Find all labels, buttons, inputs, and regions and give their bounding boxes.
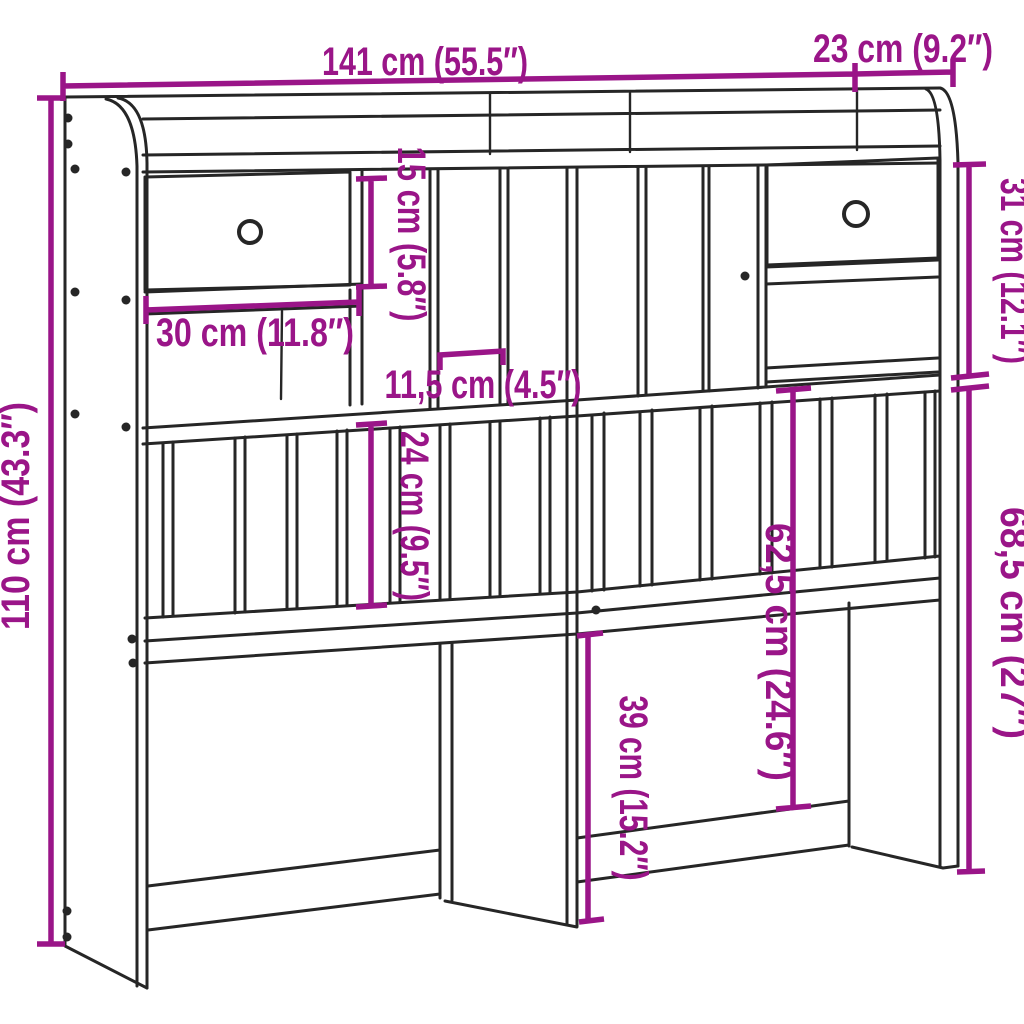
right-leg <box>849 603 958 868</box>
dim-leg-clearance-height: 39 cm (15.2″) <box>577 633 655 922</box>
dim-cubby-width-label: 11,5 cm (4.5″) <box>385 363 582 407</box>
right-drawer-knob-icon <box>844 202 868 226</box>
left-drawer-section <box>145 171 362 405</box>
pin-hole <box>71 288 80 297</box>
dim-shelf-opening-height: 15 cm (5.8″) <box>356 147 433 322</box>
pin-hole <box>129 659 138 668</box>
dim-headboard-panel-height: 62,5 cm (24.6″) <box>757 388 811 809</box>
dim-total-width-label: 141 cm (55.5″) <box>322 40 528 84</box>
legs-and-base <box>148 603 958 930</box>
pin-hole <box>64 114 73 123</box>
right-panel-outer <box>940 88 958 866</box>
outer-frame <box>65 88 958 988</box>
pin-hole <box>63 933 72 942</box>
left-panel-outer <box>65 97 147 988</box>
top-board-bottom-edge <box>143 110 940 119</box>
dim-lower-section-height-line <box>957 386 985 872</box>
left-drawer-knob-icon <box>239 221 261 243</box>
dim-total-height: 110 cm (43.3″) <box>0 98 65 944</box>
furniture-drawing <box>63 88 959 988</box>
lower-rail <box>145 556 940 663</box>
dim-drawer-opening-width-label: 30 cm (11.8″) <box>156 311 354 355</box>
center-leg <box>440 644 577 927</box>
pin-hole <box>71 410 80 419</box>
left-panel-corner-outer <box>106 99 137 986</box>
left-panel-corner-inner <box>118 98 147 988</box>
top-rail-joints <box>490 91 857 154</box>
pin-hole <box>71 165 80 174</box>
center-divider <box>567 168 577 926</box>
dim-top-depth: 23 cm (9.2″) <box>813 27 993 87</box>
dim-drawer-opening-width: 30 cm (11.8″) <box>146 288 359 355</box>
pin-hole <box>122 296 131 305</box>
slats-left-group <box>163 417 550 617</box>
dim-leg-clearance-height-label: 39 cm (15.2″) <box>611 696 655 881</box>
pin-hole <box>122 168 131 177</box>
dim-top-section-height: 31 cm (12.1″) <box>951 164 1024 390</box>
dim-lower-section-height: 68,5 cm (27″) <box>957 386 1024 872</box>
left-kick-rail <box>148 850 440 930</box>
pin-hole <box>741 272 750 281</box>
drawing-canvas: 141 cm (55.5″) 23 cm (9.2″) 110 cm (43.3… <box>0 0 1024 1024</box>
pin-hole <box>122 423 131 432</box>
dim-top-section-height-label: 31 cm (12.1″) <box>992 178 1024 364</box>
cubby-ceiling-edge <box>143 163 940 172</box>
right-drawer-front <box>767 158 938 265</box>
dim-slat-section-height-label: 24 cm (9.5″) <box>392 431 436 601</box>
pin-hole <box>64 140 73 149</box>
cubby-divider-3 <box>638 167 646 396</box>
pin-hole <box>63 907 72 916</box>
dim-lower-section-height-label: 68,5 cm (27″) <box>992 507 1024 739</box>
pin-hole <box>592 606 601 615</box>
cubby-divider-wide <box>703 166 766 391</box>
dim-shelf-opening-height-label: 15 cm (5.8″) <box>389 147 433 322</box>
top-rail-bottom-edge <box>143 146 940 155</box>
dim-total-height-label: 110 cm (43.3″) <box>0 402 38 630</box>
headboard-dimension-diagram: 141 cm (55.5″) 23 cm (9.2″) 110 cm (43.3… <box>0 0 1024 1024</box>
pin-hole <box>128 635 137 644</box>
dim-total-height-line <box>37 98 65 944</box>
headboard-slats <box>163 391 935 617</box>
dim-headboard-panel-height-label: 62,5 cm (24.6″) <box>757 523 801 781</box>
dim-slat-section-height-line <box>356 423 387 607</box>
top-board-edge <box>65 88 940 97</box>
left-drawer-front <box>145 172 350 290</box>
right-drawer-section <box>766 158 938 382</box>
dim-cubby-width: 11,5 cm (4.5″) <box>385 351 582 407</box>
dim-slat-section-height: 24 cm (9.5″) <box>356 423 436 607</box>
dim-top-depth-label: 23 cm (9.2″) <box>813 27 993 71</box>
